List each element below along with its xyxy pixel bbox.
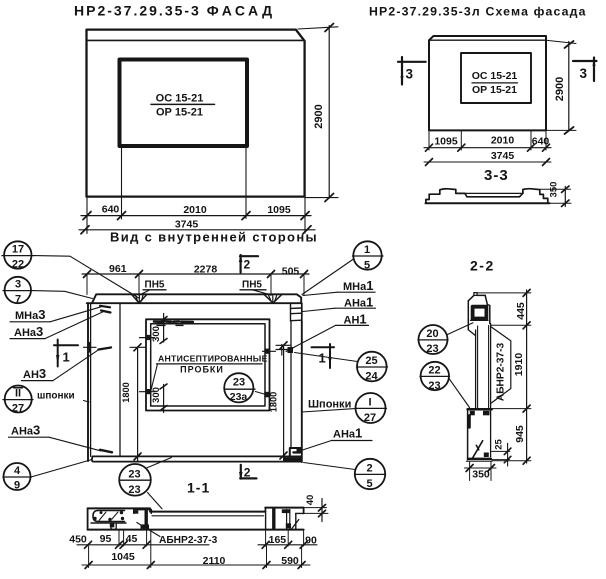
svg-text:40: 40	[305, 495, 316, 506]
svg-text:165: 165	[269, 534, 287, 546]
svg-text:2110: 2110	[203, 555, 226, 567]
svg-text:22: 22	[428, 365, 440, 377]
svg-text:945: 945	[514, 425, 526, 443]
svg-text:АБНР2-37-3: АБНР2-37-3	[159, 535, 218, 546]
svg-text:АБНР2-37-3: АБНР2-37-3	[496, 343, 507, 402]
svg-text:1: 1	[63, 350, 70, 365]
svg-text:300: 300	[151, 326, 162, 342]
svg-text:2: 2	[366, 463, 372, 475]
svg-text:ОС 15-21: ОС 15-21	[472, 70, 518, 82]
svg-text:3: 3	[15, 279, 21, 291]
svg-text:МНа1: МНа1	[343, 278, 373, 293]
svg-text:I: I	[368, 397, 371, 409]
svg-text:1095: 1095	[434, 136, 458, 148]
svg-text:27: 27	[12, 403, 24, 415]
svg-text:445: 445	[515, 302, 527, 320]
svg-text:НР2-37.29.35-3л Схема фасада: НР2-37.29.35-3л Схема фасада	[369, 5, 587, 19]
svg-text:АНТИСЕПТИРОВАННЫЕ: АНТИСЕПТИРОВАННЫЕ	[158, 354, 268, 364]
svg-text:Вид с внутренней стороны: Вид с внутренней стороны	[110, 230, 318, 245]
svg-text:22: 22	[12, 259, 24, 271]
svg-text:II: II	[15, 388, 21, 400]
svg-text:2: 2	[244, 258, 251, 272]
svg-text:2010: 2010	[491, 135, 515, 147]
svg-text:640: 640	[102, 204, 120, 216]
svg-text:24: 24	[365, 371, 378, 383]
svg-text:45: 45	[126, 533, 138, 545]
svg-text:шпонки: шпонки	[37, 391, 75, 402]
svg-text:1-1: 1-1	[187, 480, 210, 496]
svg-text:1: 1	[364, 244, 370, 256]
svg-text:ОР 15-21: ОР 15-21	[472, 84, 517, 96]
svg-text:300: 300	[151, 387, 162, 403]
svg-text:1: 1	[319, 351, 326, 366]
svg-text:2: 2	[244, 466, 251, 480]
svg-text:ПРОБКИ: ПРОБКИ	[180, 365, 224, 375]
svg-text:23а: 23а	[230, 391, 248, 403]
svg-text:АНа3: АНа3	[11, 423, 40, 438]
svg-text:450: 450	[69, 534, 87, 546]
svg-text:350: 350	[549, 182, 560, 198]
svg-text:ПН5: ПН5	[145, 280, 165, 291]
svg-text:ПН5: ПН5	[242, 280, 262, 291]
svg-text:25: 25	[365, 355, 377, 367]
svg-text:17: 17	[12, 244, 24, 256]
svg-text:1095: 1095	[267, 204, 291, 216]
svg-text:2900: 2900	[313, 104, 325, 128]
svg-text:1800: 1800	[121, 382, 131, 402]
svg-text:961: 961	[109, 263, 127, 275]
svg-text:АН1: АН1	[344, 312, 367, 327]
svg-text:505: 505	[282, 266, 300, 278]
svg-text:1800: 1800	[269, 392, 279, 412]
svg-text:23: 23	[233, 377, 245, 389]
svg-text:23: 23	[428, 380, 440, 392]
svg-text:640: 640	[532, 136, 550, 148]
svg-text:АНа1: АНа1	[333, 426, 362, 441]
svg-text:2010: 2010	[183, 204, 207, 216]
svg-text:7: 7	[15, 294, 21, 306]
svg-text:23: 23	[426, 343, 438, 355]
svg-text:20: 20	[426, 328, 438, 340]
svg-text:ОР 15-21: ОР 15-21	[156, 107, 203, 119]
svg-text:3-3: 3-3	[484, 167, 509, 184]
svg-text:2900: 2900	[554, 77, 566, 101]
svg-text:ОС 15-21: ОС 15-21	[156, 93, 204, 105]
svg-text:2278: 2278	[194, 263, 218, 275]
svg-text:3745: 3745	[491, 150, 515, 162]
svg-text:1045: 1045	[111, 551, 135, 563]
svg-text:3: 3	[406, 67, 414, 82]
svg-text:350: 350	[472, 468, 490, 480]
svg-text:4: 4	[14, 465, 21, 477]
svg-text:23: 23	[128, 484, 140, 496]
svg-text:590: 590	[281, 555, 299, 567]
svg-text:23: 23	[128, 469, 140, 481]
svg-text:5: 5	[364, 260, 370, 272]
svg-text:3: 3	[580, 66, 588, 81]
svg-text:95: 95	[100, 533, 112, 545]
svg-text:МНа3: МНа3	[15, 307, 45, 322]
svg-text:1910: 1910	[513, 353, 525, 377]
svg-text:25: 25	[494, 439, 505, 450]
svg-text:9: 9	[14, 480, 20, 492]
svg-text:АНа1: АНа1	[344, 295, 373, 310]
svg-text:АНа3: АНа3	[14, 324, 43, 339]
svg-text:90: 90	[305, 534, 317, 546]
svg-text:5: 5	[366, 478, 372, 490]
svg-text:АН3: АН3	[23, 366, 46, 381]
svg-text:2-2: 2-2	[470, 258, 495, 274]
svg-text:НР2-37.29.35-3 ФАСАД: НР2-37.29.35-3 ФАСАД	[74, 3, 275, 19]
svg-text:27: 27	[364, 412, 376, 424]
